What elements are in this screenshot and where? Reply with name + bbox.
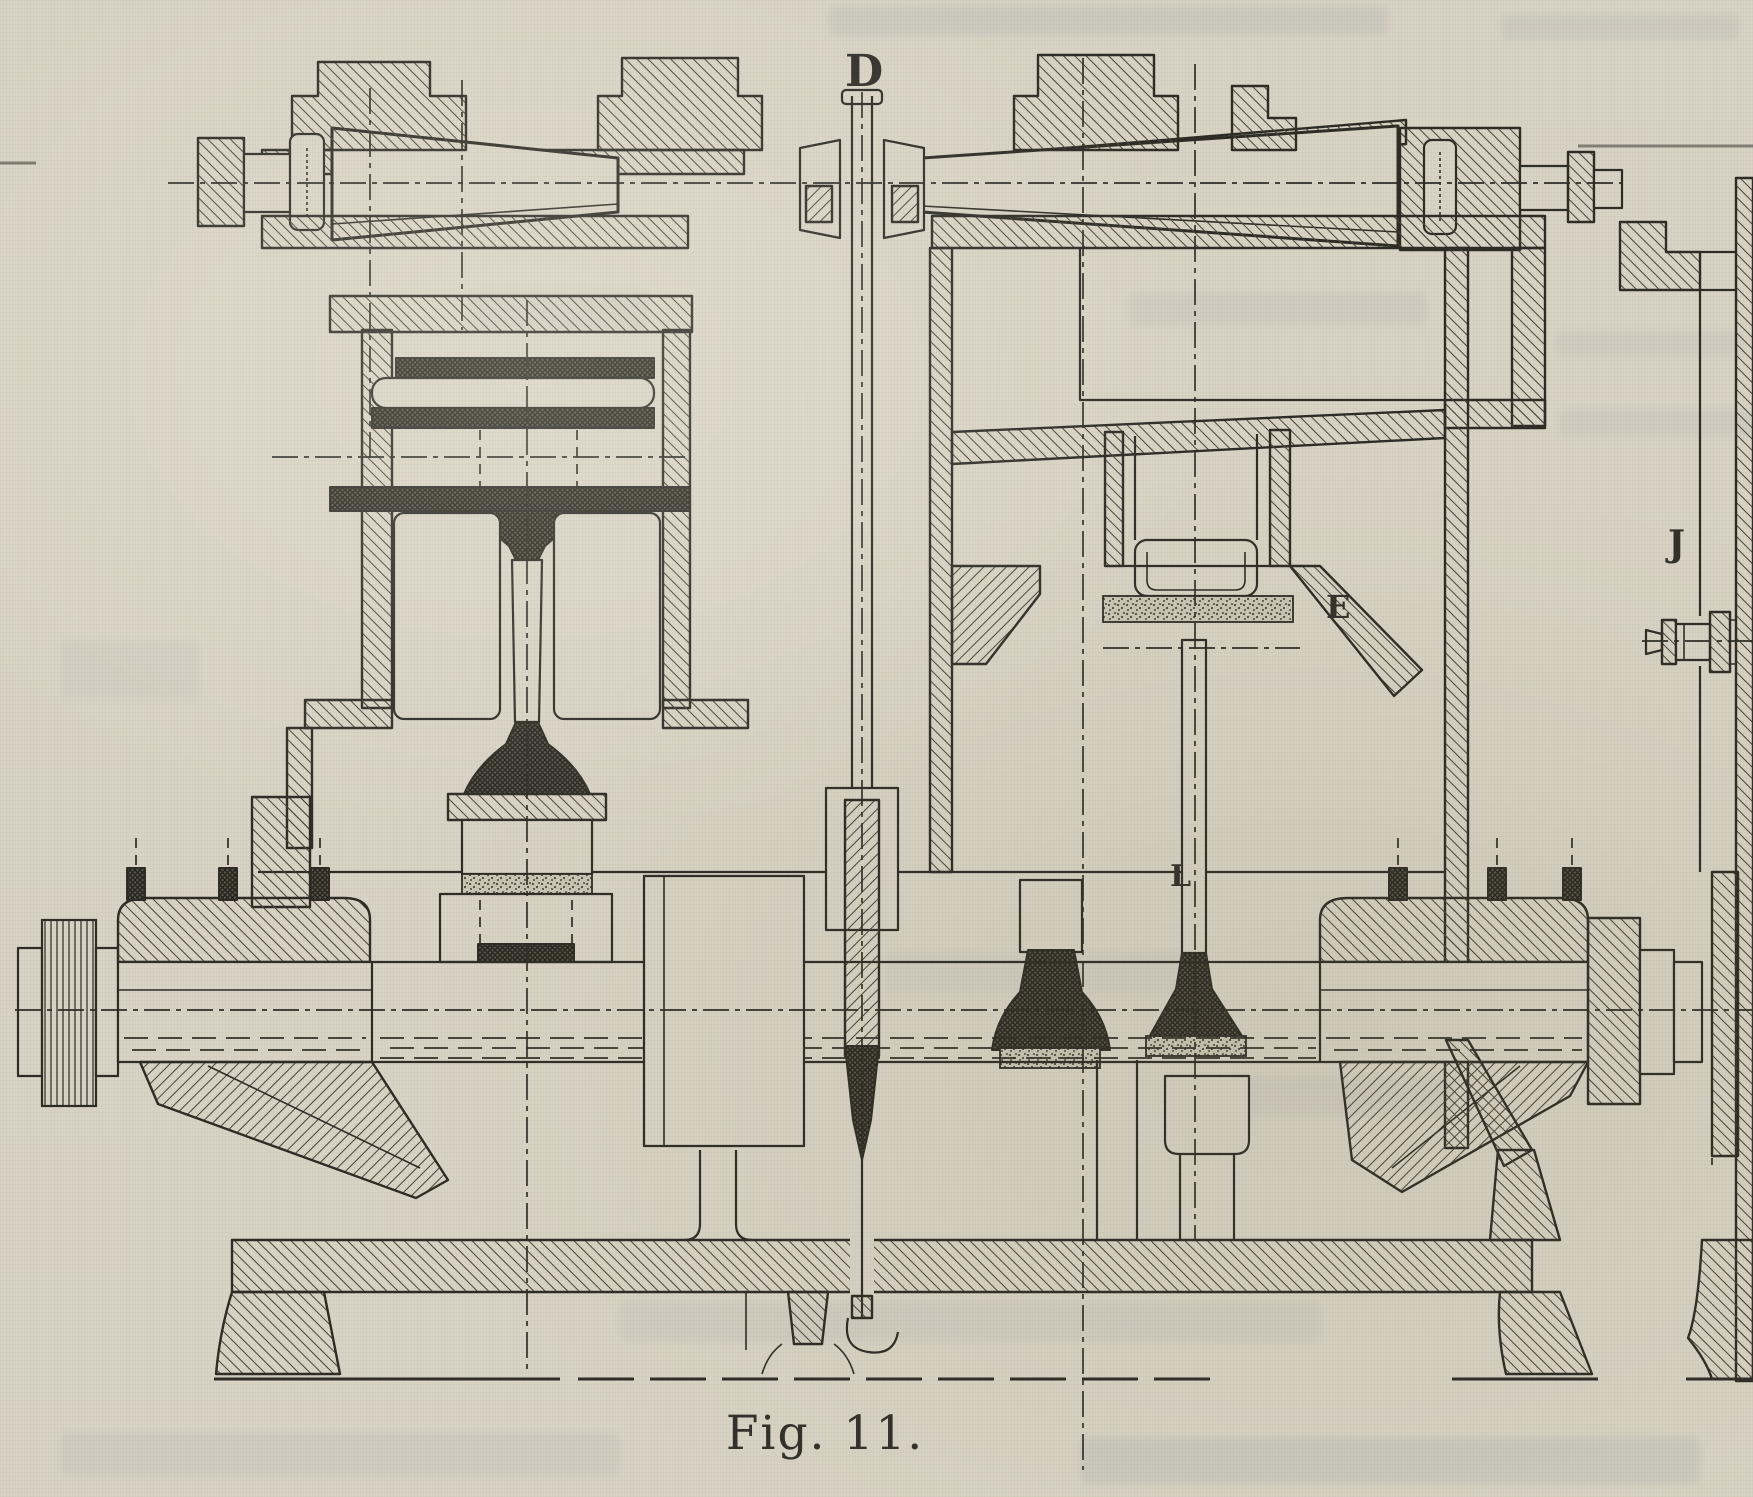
cylinder-deck <box>932 216 1545 248</box>
adjacent-figure-fragment <box>1578 146 1753 1381</box>
cylinder-deck <box>262 216 688 248</box>
left-cylinder <box>252 296 748 962</box>
part-label-d: D <box>845 46 883 97</box>
engine-cross-section-drawing: D E J L <box>0 0 1753 1497</box>
part-label-j: J <box>1665 523 1685 565</box>
part-label-e: E <box>1326 588 1350 626</box>
adjacent-figure-fragment <box>1620 222 1753 1379</box>
figure-caption: Fig. 11. <box>615 1406 1035 1461</box>
part-label-l: L <box>1170 859 1191 894</box>
scanned-page: D E J L Fig. 11. <box>0 0 1753 1497</box>
